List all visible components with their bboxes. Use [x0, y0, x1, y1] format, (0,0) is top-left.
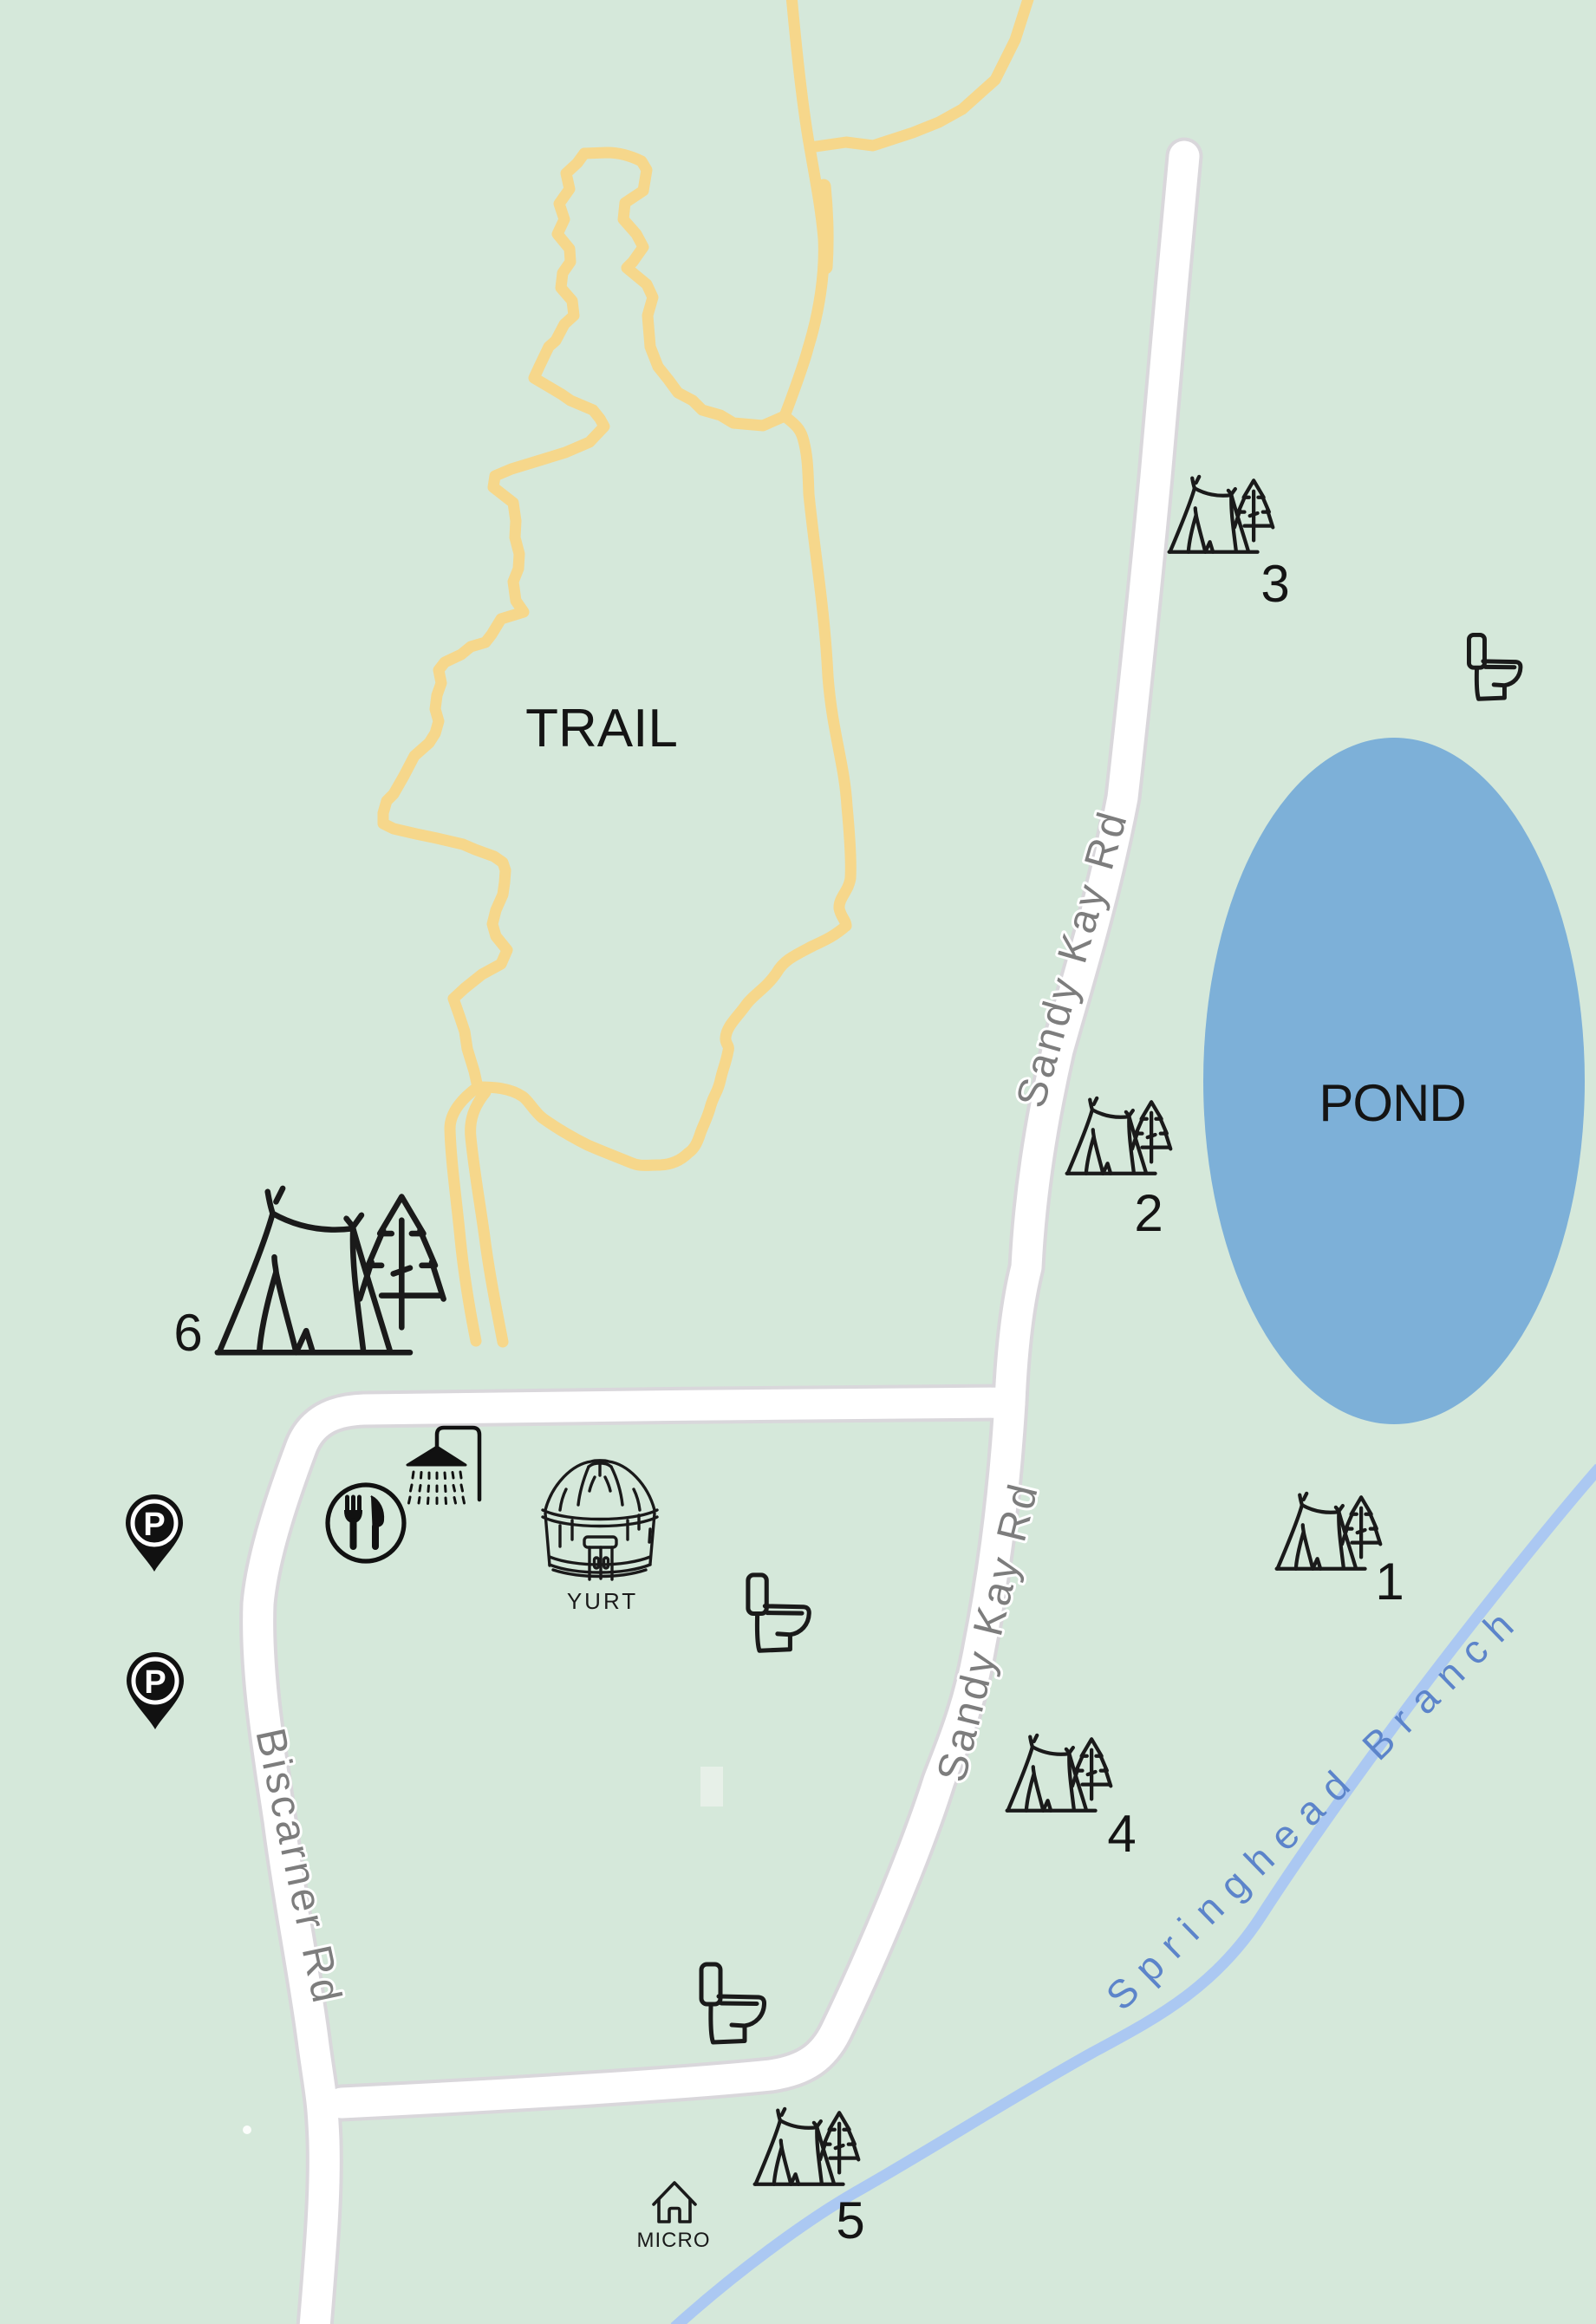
svg-text:6: 6	[173, 1304, 202, 1362]
svg-text:TRAIL: TRAIL	[525, 699, 678, 758]
svg-text:2: 2	[1134, 1184, 1163, 1242]
svg-text:4: 4	[1107, 1805, 1136, 1863]
svg-text:POND: POND	[1319, 1074, 1465, 1132]
svg-text:3: 3	[1261, 555, 1289, 613]
svg-text:MICRO: MICRO	[637, 2229, 711, 2252]
svg-text:5: 5	[836, 2191, 864, 2249]
svg-text:YURT: YURT	[567, 1588, 638, 1614]
svg-text:1: 1	[1375, 1553, 1404, 1611]
